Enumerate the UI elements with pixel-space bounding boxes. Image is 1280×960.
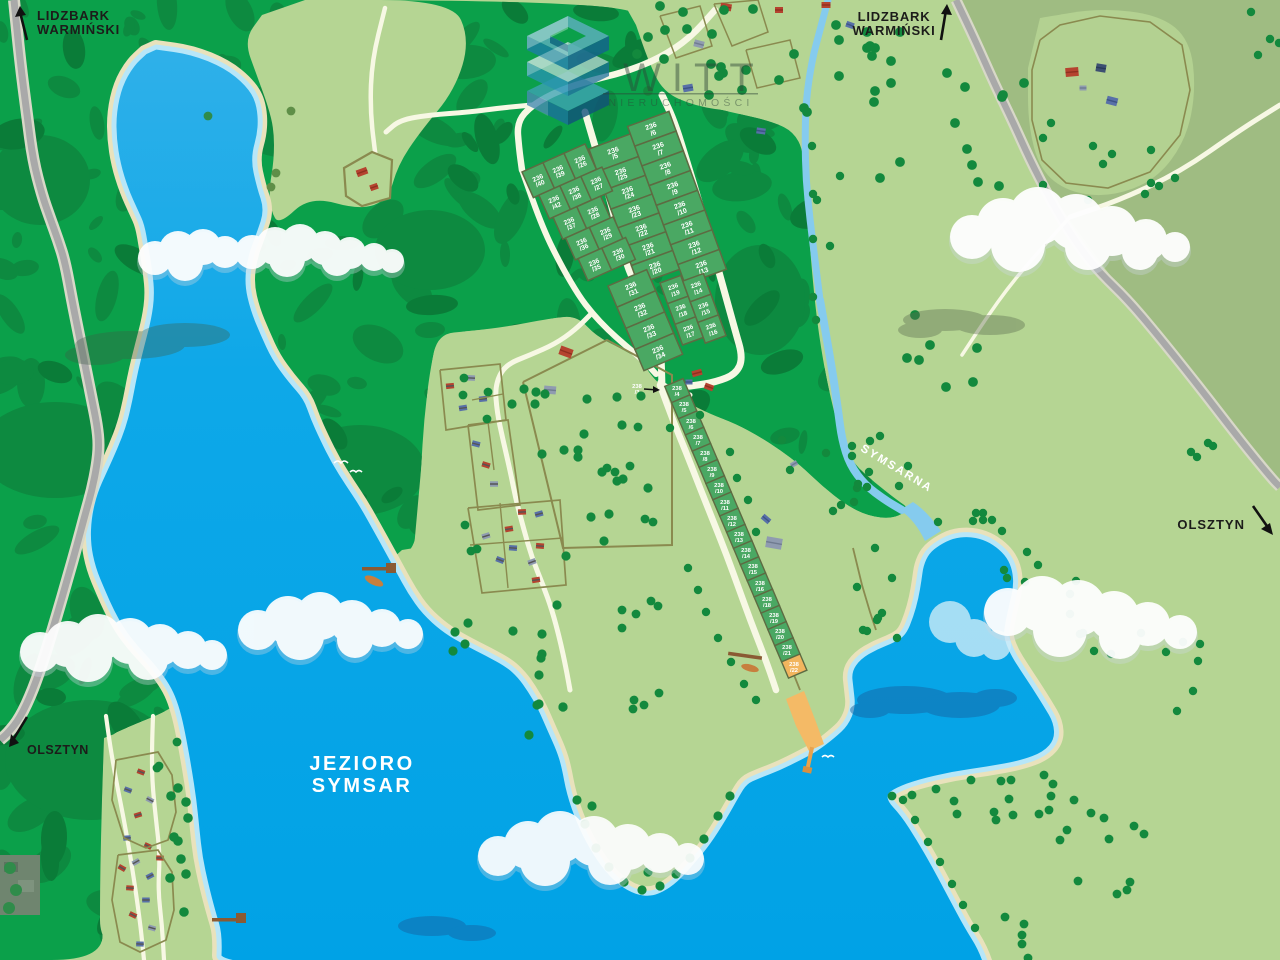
svg-text:/16: /16 xyxy=(756,587,765,593)
svg-text:/5: /5 xyxy=(682,408,688,414)
svg-text:/20: /20 xyxy=(776,635,784,641)
svg-text:/9: /9 xyxy=(710,473,716,479)
svg-text:/22: /22 xyxy=(790,668,798,674)
svg-text:LIDZBARK: LIDZBARK xyxy=(858,9,931,24)
svg-text:JEZIORO: JEZIORO xyxy=(309,753,414,775)
svg-text:LIDZBARK: LIDZBARK xyxy=(37,8,110,23)
svg-text:/8: /8 xyxy=(703,457,709,463)
svg-text:/6: /6 xyxy=(689,425,695,431)
svg-text:/21: /21 xyxy=(783,651,792,657)
svg-text:/12: /12 xyxy=(728,522,736,528)
svg-text:/4: /4 xyxy=(675,392,681,398)
svg-text:WARMIŃSKI: WARMIŃSKI xyxy=(37,22,120,37)
svg-text:/11: /11 xyxy=(721,506,730,512)
svg-text:OLSZTYN: OLSZTYN xyxy=(27,743,89,757)
svg-text:/19: /19 xyxy=(770,619,779,625)
svg-text:/7: /7 xyxy=(696,441,701,447)
svg-text:/18: /18 xyxy=(763,603,772,609)
svg-text:NIERUCHOMOŚCI: NIERUCHOMOŚCI xyxy=(608,96,753,109)
svg-text:SYMSAR: SYMSAR xyxy=(312,775,413,797)
svg-text:WARMIŃSKI: WARMIŃSKI xyxy=(852,23,935,38)
svg-text:/13: /13 xyxy=(735,538,744,544)
svg-text:/15: /15 xyxy=(749,570,758,576)
svg-text:OLSZTYN: OLSZTYN xyxy=(1177,517,1245,532)
svg-text:/14: /14 xyxy=(742,554,751,560)
svg-text:/10: /10 xyxy=(715,489,723,495)
